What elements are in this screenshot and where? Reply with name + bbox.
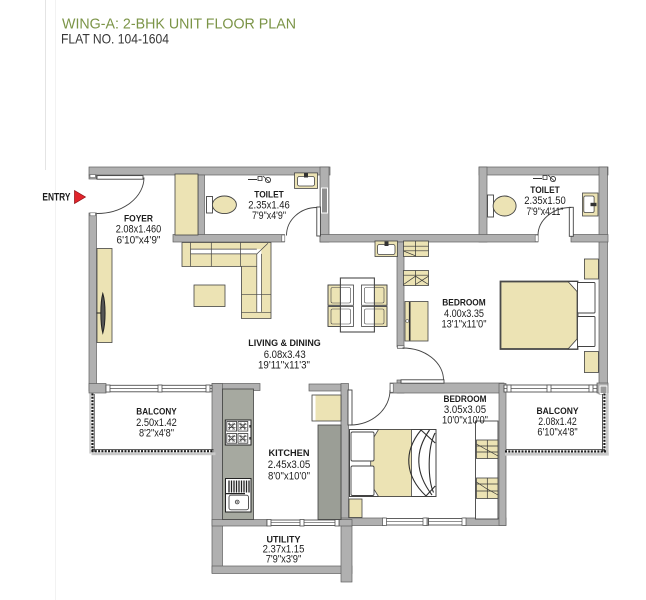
- svg-text:8'2"x4'8": 8'2"x4'8": [139, 427, 174, 439]
- svg-text:8'0"x10'0": 8'0"x10'0": [268, 471, 310, 483]
- svg-text:13'1"x11'0": 13'1"x11'0": [442, 319, 487, 331]
- svg-text:6'10"x4'8": 6'10"x4'8": [537, 427, 578, 439]
- svg-text:TOILET: TOILET: [530, 184, 560, 195]
- svg-text:2.45x3.05: 2.45x3.05: [268, 459, 311, 471]
- svg-text:FOYER: FOYER: [124, 212, 153, 223]
- svg-text:LIVING & DINING: LIVING & DINING: [248, 337, 321, 348]
- svg-text:TOILET: TOILET: [254, 188, 284, 199]
- svg-text:KITCHEN: KITCHEN: [269, 447, 310, 458]
- svg-text:ENTRY: ENTRY: [42, 192, 71, 204]
- svg-text:BALCONY: BALCONY: [537, 405, 580, 416]
- svg-text:7'9"x4'11": 7'9"x4'11": [527, 206, 564, 218]
- svg-text:10'0"x10'0": 10'0"x10'0": [442, 415, 488, 427]
- svg-text:19'11"x11'3": 19'11"x11'3": [258, 360, 310, 372]
- svg-text:7'9"x4'9": 7'9"x4'9": [252, 210, 286, 222]
- svg-text:BALCONY: BALCONY: [136, 406, 177, 417]
- svg-text:FLAT NO. 104-1604: FLAT NO. 104-1604: [61, 30, 169, 46]
- svg-text:BEDROOM: BEDROOM: [444, 393, 487, 404]
- svg-text:7'9"x3'9": 7'9"x3'9": [266, 554, 302, 566]
- svg-text:6'10"x4'9": 6'10"x4'9": [117, 234, 161, 246]
- svg-text:BEDROOM: BEDROOM: [442, 296, 486, 307]
